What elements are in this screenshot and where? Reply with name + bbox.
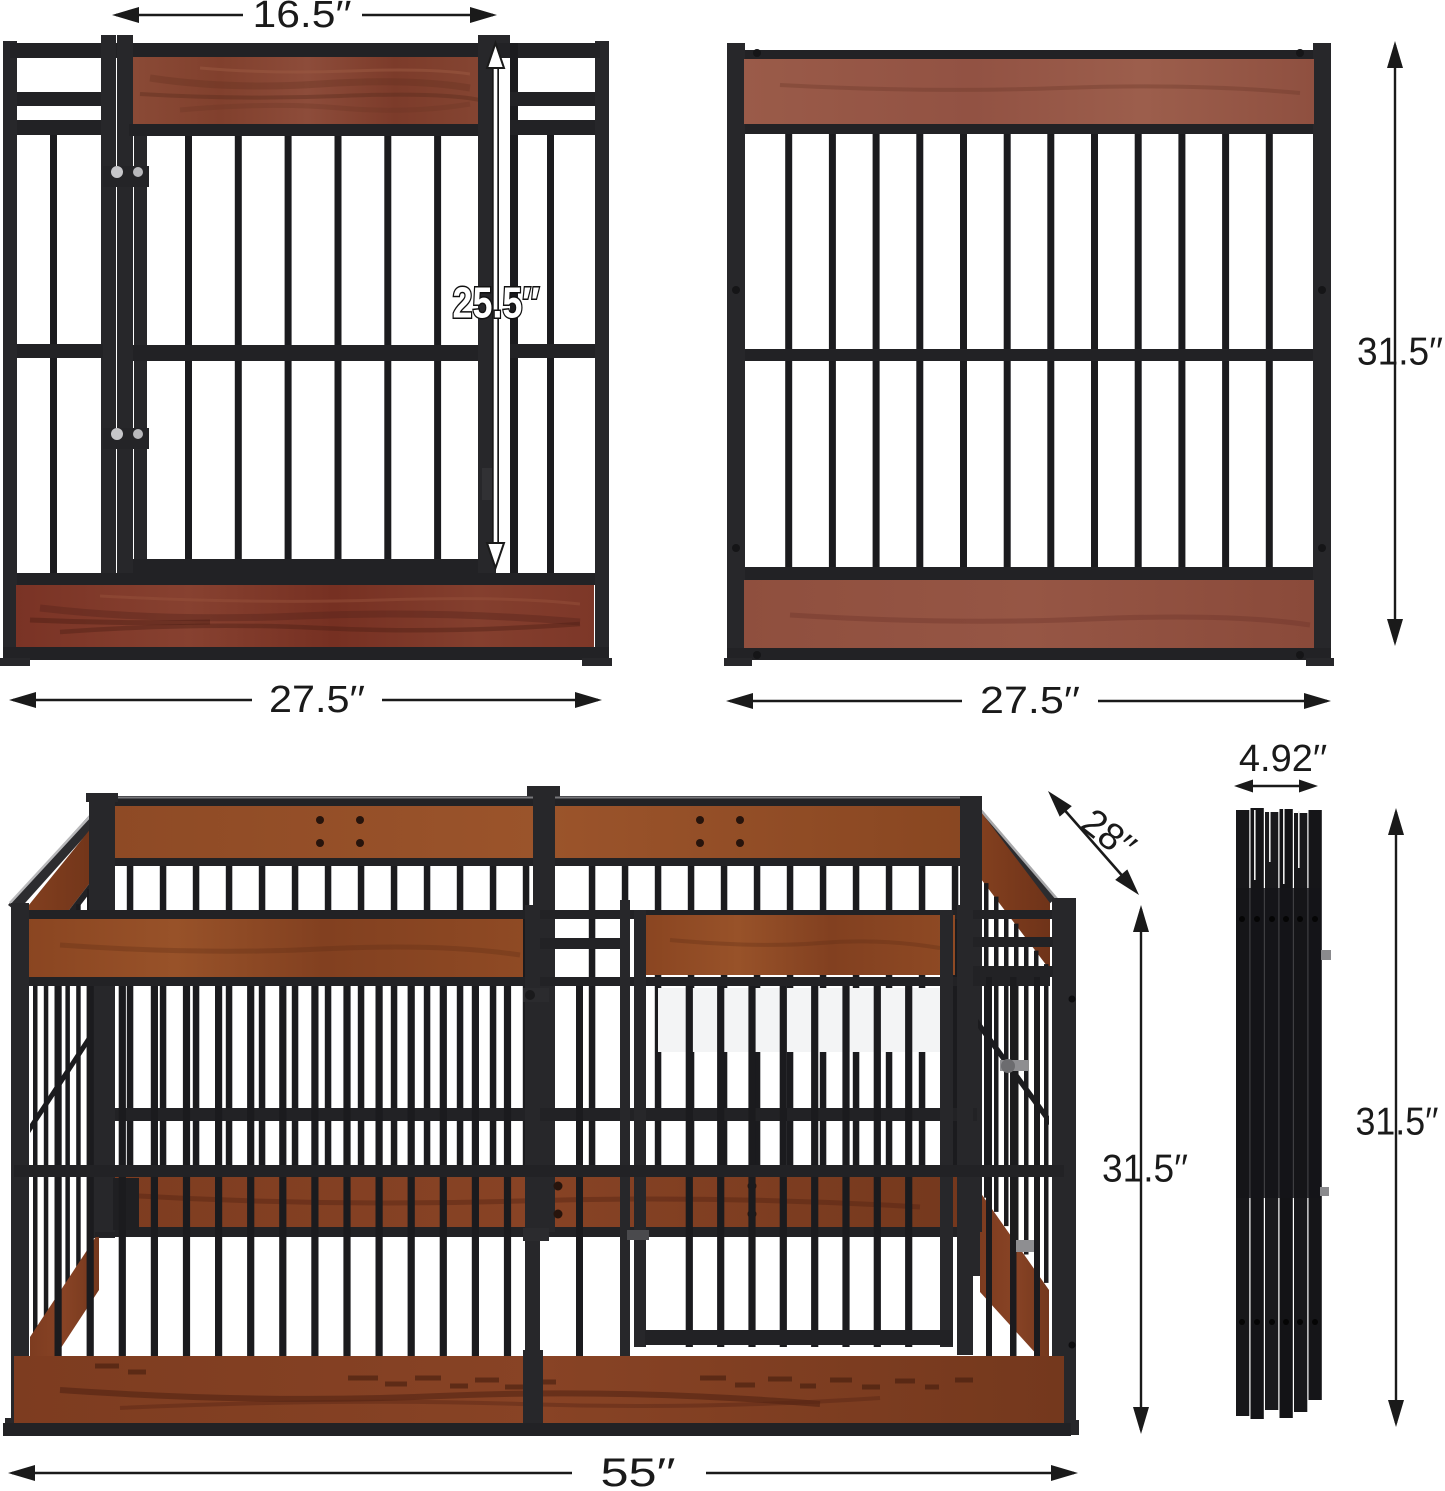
svg-text:16.5′′: 16.5′′	[253, 0, 352, 36]
svg-text:31.5′′: 31.5′′	[1102, 1148, 1188, 1191]
svg-text:25.5′′: 25.5′′	[453, 279, 540, 328]
svg-text:28′′: 28′′	[1073, 801, 1143, 869]
svg-text:4.92′′: 4.92′′	[1239, 738, 1327, 780]
svg-text:31.5′′: 31.5′′	[1356, 1101, 1439, 1144]
svg-text:27.5′′: 27.5′′	[269, 679, 365, 721]
svg-text:31.5′′: 31.5′′	[1357, 331, 1443, 374]
svg-text:55′′: 55′′	[601, 1451, 676, 1491]
svg-text:27.5′′: 27.5′′	[980, 680, 1080, 722]
